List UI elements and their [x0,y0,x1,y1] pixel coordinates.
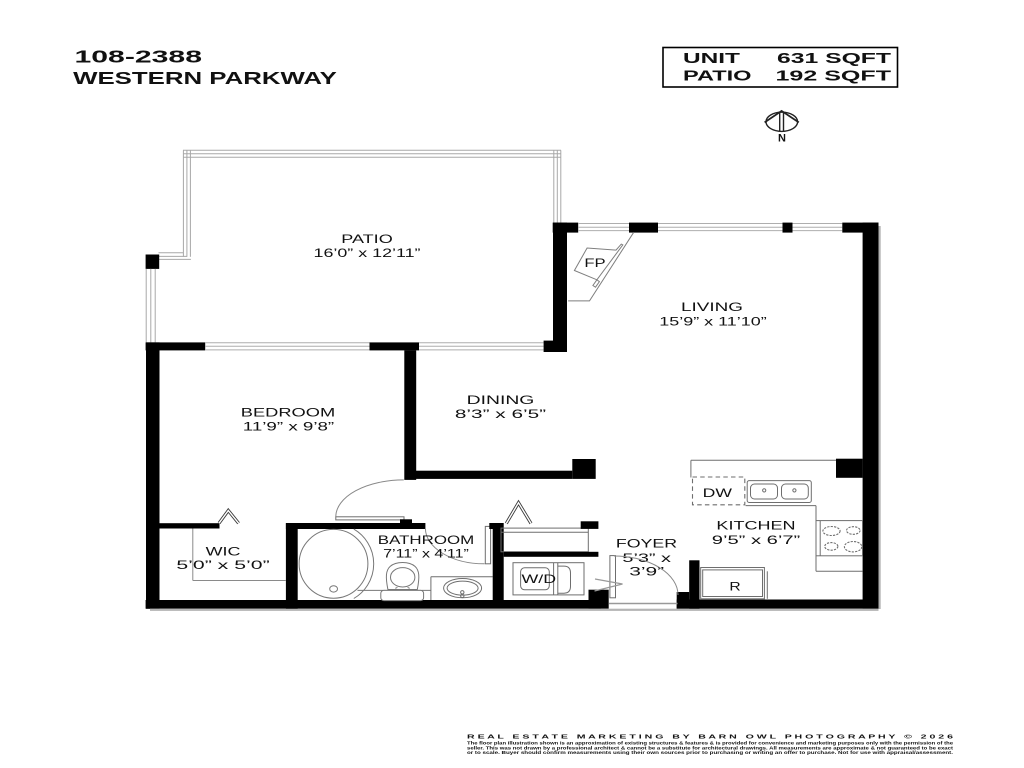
svg-text:5’0” x 5’0”: 5’0” x 5’0” [176,558,269,572]
svg-text:R: R [729,580,741,594]
svg-text:R E A L E S T A T E M A R: R E A L E S T A T E M A R K E T I N G B … [467,733,953,740]
svg-text:WIC: WIC [206,544,241,558]
svg-text:FP: FP [584,256,605,270]
svg-text:5’3” x: 5’3” x [622,551,671,565]
svg-text:FOYER: FOYER [616,537,678,551]
svg-text:LIVING: LIVING [681,300,743,314]
svg-text:KITCHEN: KITCHEN [716,519,795,533]
svg-text:PATIO: PATIO [341,232,393,246]
svg-text:PATIO: PATIO [683,69,752,85]
svg-text:16’0” x 12’11”: 16’0” x 12’11” [314,246,421,260]
svg-text:BATHROOM: BATHROOM [378,533,474,547]
svg-text:UNIT: UNIT [683,51,740,67]
svg-text:9’5” x 6’7”: 9’5” x 6’7” [712,533,801,547]
svg-text:or to scale. Buyer should conf: or to scale. Buyer should confirm measur… [467,750,953,755]
svg-text:7’11” x 4’11”: 7’11” x 4’11” [383,546,469,560]
svg-text:BEDROOM: BEDROOM [241,406,335,420]
svg-text:192 SQFT: 192 SQFT [776,69,892,85]
svg-text:15’9” x 11’10”: 15’9” x 11’10” [659,314,767,328]
svg-text:WESTERN PARKWAY: WESTERN PARKWAY [73,68,337,88]
svg-text:3’9”: 3’9” [629,565,664,579]
svg-text:631 SQFT: 631 SQFT [777,51,891,67]
svg-text:DW: DW [703,486,733,500]
svg-text:11’9” x 9’8”: 11’9” x 9’8” [243,420,334,434]
svg-text:W/D: W/D [522,572,557,586]
svg-text:108-2388: 108-2388 [75,46,203,66]
svg-text:N: N [778,133,786,145]
svg-text:DINING: DINING [467,393,535,407]
svg-text:8’3” x 6’5”: 8’3” x 6’5” [455,407,546,421]
